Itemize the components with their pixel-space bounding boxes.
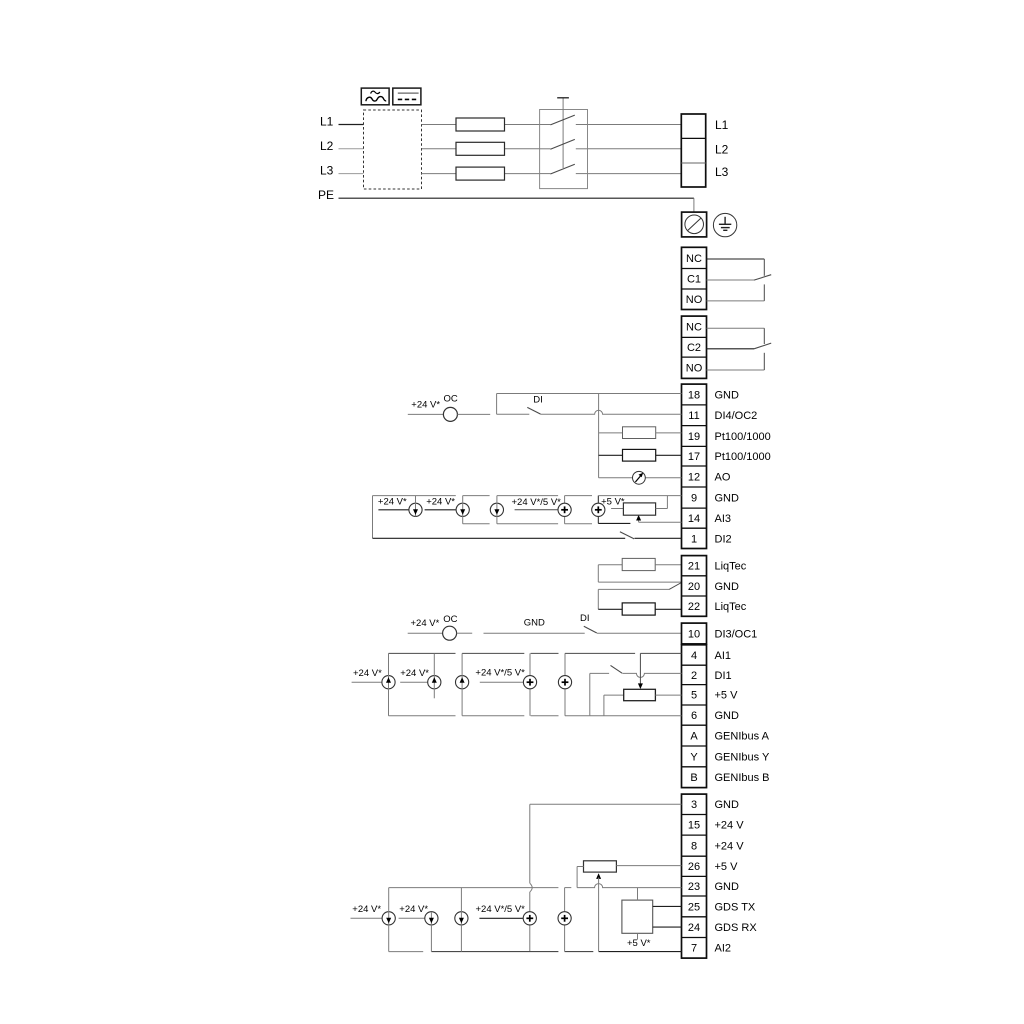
svg-text:GND: GND (715, 492, 740, 504)
svg-text:+5 V*: +5 V* (627, 938, 651, 949)
svg-text:+24 V: +24 V (715, 820, 745, 832)
svg-text:11: 11 (688, 410, 699, 422)
svg-text:+24 V*: +24 V* (426, 497, 455, 508)
svg-text:GND: GND (524, 618, 545, 629)
svg-text:+24 V*: +24 V* (378, 497, 407, 508)
svg-text:L2: L2 (320, 139, 334, 153)
svg-text:17: 17 (688, 451, 700, 463)
svg-text:14: 14 (688, 513, 700, 525)
svg-text:C1: C1 (687, 274, 701, 286)
svg-text:10: 10 (688, 628, 700, 640)
svg-text:AI1: AI1 (715, 650, 732, 662)
svg-text:+24 V*: +24 V* (400, 668, 429, 679)
svg-text:GND: GND (715, 881, 740, 893)
svg-text:DI4/OC2: DI4/OC2 (715, 410, 758, 422)
svg-text:+5 V*: +5 V* (601, 497, 625, 508)
svg-text:OC: OC (444, 394, 458, 405)
svg-text:12: 12 (688, 471, 700, 483)
svg-text:L2: L2 (715, 142, 729, 156)
svg-text:LiqTec: LiqTec (715, 601, 747, 613)
svg-text:+24 V*: +24 V* (411, 618, 440, 629)
svg-text:DI: DI (533, 394, 543, 405)
svg-text:GDS TX: GDS TX (715, 901, 756, 913)
svg-text:LiqTec: LiqTec (715, 561, 747, 573)
svg-text:Pt100/1000: Pt100/1000 (715, 431, 771, 443)
svg-text:L3: L3 (715, 165, 729, 179)
svg-text:C2: C2 (687, 342, 701, 354)
svg-text:8: 8 (691, 841, 697, 853)
svg-text:NO: NO (686, 294, 703, 306)
svg-text:GENIbus Y: GENIbus Y (715, 751, 770, 763)
svg-text:DI3/OC1: DI3/OC1 (715, 628, 758, 640)
svg-text:GND: GND (715, 710, 740, 722)
svg-text:+5 V: +5 V (715, 861, 739, 873)
svg-text:21: 21 (688, 561, 700, 573)
svg-text:NC: NC (686, 322, 702, 334)
svg-text:+24 V*/5 V*: +24 V*/5 V* (476, 904, 526, 915)
svg-text:25: 25 (688, 901, 700, 913)
svg-text:+24 V*: +24 V* (411, 400, 440, 411)
svg-text:GND: GND (715, 799, 740, 811)
svg-text:Pt100/1000: Pt100/1000 (715, 451, 771, 463)
svg-text:AI2: AI2 (715, 943, 732, 955)
svg-text:AI3: AI3 (715, 513, 732, 525)
svg-text:7: 7 (691, 943, 697, 955)
svg-text:18: 18 (688, 389, 700, 401)
svg-text:+24 V*: +24 V* (353, 668, 382, 679)
svg-text:4: 4 (691, 650, 697, 662)
svg-text:+24 V*/5 V*: +24 V*/5 V* (475, 668, 525, 679)
svg-text:6: 6 (691, 710, 697, 722)
svg-text:+24 V*: +24 V* (352, 904, 381, 915)
svg-text:+24 V: +24 V (715, 841, 745, 853)
svg-text:OC: OC (443, 614, 457, 625)
svg-text:26: 26 (688, 861, 700, 873)
svg-text:GND: GND (715, 581, 740, 593)
svg-text:5: 5 (691, 690, 697, 702)
svg-text:+5 V: +5 V (715, 690, 739, 702)
svg-text:L3: L3 (320, 163, 334, 177)
svg-text:+24 V*: +24 V* (399, 904, 428, 915)
svg-text:L1: L1 (320, 115, 334, 129)
svg-text:20: 20 (688, 581, 700, 593)
svg-text:9: 9 (691, 492, 697, 504)
svg-text:AO: AO (715, 471, 731, 483)
svg-text:15: 15 (688, 820, 700, 832)
svg-text:+24 V*/5 V*: +24 V*/5 V* (512, 497, 562, 508)
svg-text:23: 23 (688, 881, 700, 893)
svg-text:2: 2 (691, 670, 697, 682)
svg-text:DI2: DI2 (715, 533, 732, 545)
svg-text:19: 19 (688, 431, 700, 443)
svg-text:1: 1 (691, 533, 697, 545)
svg-text:NC: NC (686, 253, 702, 265)
svg-text:A: A (690, 731, 698, 743)
svg-text:NO: NO (686, 363, 703, 375)
svg-text:Y: Y (690, 751, 698, 763)
svg-text:DI: DI (580, 613, 590, 624)
svg-text:L1: L1 (715, 118, 729, 132)
svg-text:3: 3 (691, 799, 697, 811)
svg-text:PE: PE (318, 188, 334, 202)
svg-text:GDS RX: GDS RX (715, 922, 758, 934)
svg-text:GENIbus A: GENIbus A (715, 731, 770, 743)
svg-text:GND: GND (715, 389, 740, 401)
svg-text:DI1: DI1 (715, 670, 732, 682)
svg-text:22: 22 (688, 601, 700, 613)
svg-text:24: 24 (688, 922, 700, 934)
svg-text:GENIbus B: GENIbus B (715, 772, 770, 784)
svg-text:B: B (690, 772, 697, 784)
